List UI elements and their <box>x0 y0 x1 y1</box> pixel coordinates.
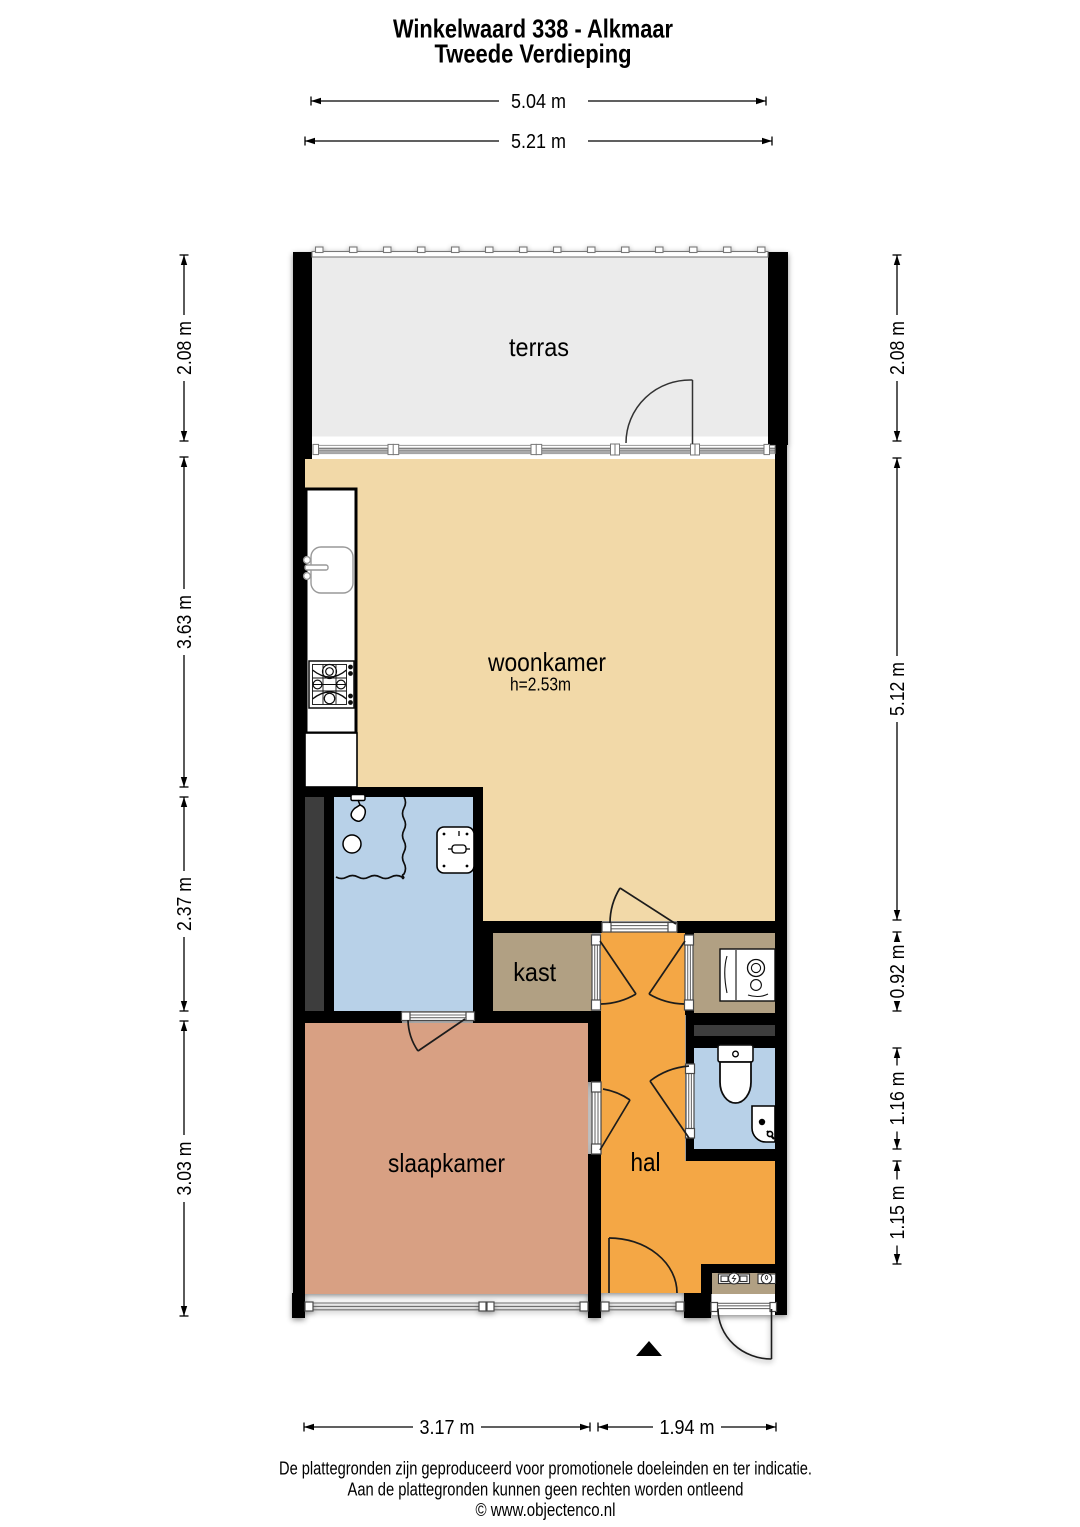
svg-text:2.08 m: 2.08 m <box>887 321 909 375</box>
svg-text:3.03 m: 3.03 m <box>174 1142 196 1196</box>
svg-text:woonkamer: woonkamer <box>487 647 606 677</box>
svg-text:De plattegronden zijn geproduc: De plattegronden zijn geproduceerd voor … <box>279 1458 812 1479</box>
svg-text:h=2.53m: h=2.53m <box>510 674 571 695</box>
svg-text:5.04 m: 5.04 m <box>511 91 566 113</box>
svg-text:1.94 m: 1.94 m <box>660 1417 715 1439</box>
svg-text:1.15 m: 1.15 m <box>887 1186 909 1240</box>
svg-text:3.17 m: 3.17 m <box>420 1417 475 1439</box>
svg-text:slaapkamer: slaapkamer <box>388 1148 505 1178</box>
svg-text:1.16 m: 1.16 m <box>887 1072 909 1126</box>
svg-text:2.37 m: 2.37 m <box>174 877 196 931</box>
svg-text:5.21 m: 5.21 m <box>511 131 566 153</box>
svg-text:3.63 m: 3.63 m <box>174 595 196 649</box>
svg-text:kast: kast <box>513 957 557 987</box>
svg-text:0.92 m: 0.92 m <box>887 945 909 999</box>
svg-text:2.08 m: 2.08 m <box>174 321 196 375</box>
svg-text:Aan de plattegronden kunnen ge: Aan de plattegronden kunnen geen rechten… <box>348 1478 744 1499</box>
svg-text:terras: terras <box>509 332 569 362</box>
svg-text:5.12 m: 5.12 m <box>887 662 909 716</box>
svg-text:© www.objectenco.nl: © www.objectenco.nl <box>476 1499 616 1520</box>
svg-text:hal: hal <box>631 1147 661 1177</box>
svg-text:Tweede Verdieping: Tweede Verdieping <box>435 38 632 68</box>
